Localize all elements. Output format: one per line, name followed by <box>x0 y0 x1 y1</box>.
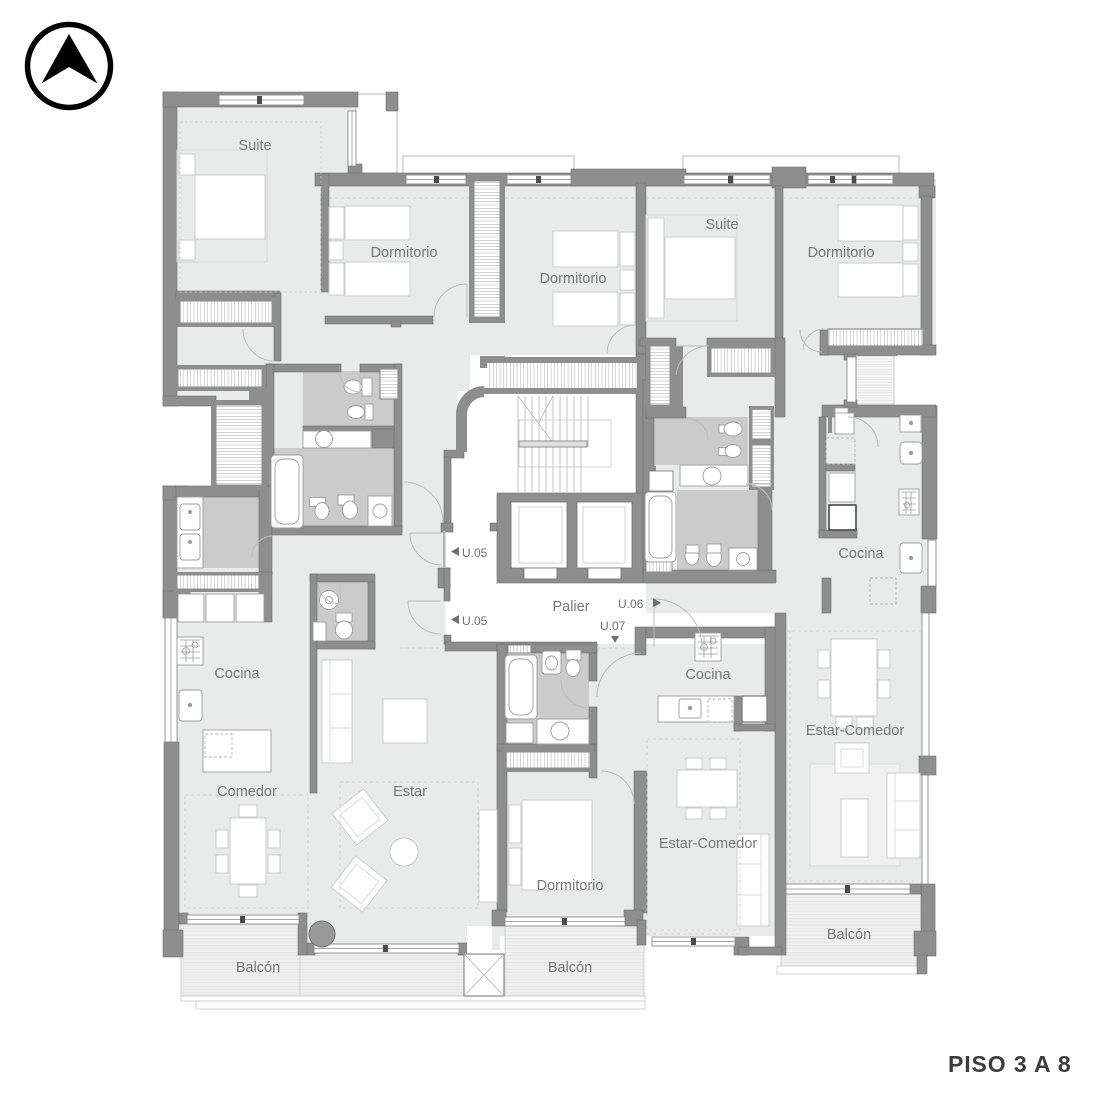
svg-text:Estar-Comedor: Estar-Comedor <box>806 723 904 739</box>
svg-text:Cocina: Cocina <box>214 666 260 682</box>
svg-text:Balcón: Balcón <box>827 927 871 943</box>
svg-text:U.05: U.05 <box>462 614 488 628</box>
svg-text:Dormitorio: Dormitorio <box>371 245 438 261</box>
svg-text:Dormitorio: Dormitorio <box>808 245 875 261</box>
svg-text:Balcón: Balcón <box>236 960 280 976</box>
svg-text:Suite: Suite <box>238 138 271 154</box>
svg-text:Estar-Comedor: Estar-Comedor <box>659 836 757 852</box>
svg-text:Balcón: Balcón <box>548 960 592 976</box>
svg-text:U.05: U.05 <box>462 546 488 560</box>
svg-text:PISO 3 A 8: PISO 3 A 8 <box>948 1051 1072 1077</box>
svg-text:Estar: Estar <box>393 784 427 800</box>
svg-text:U.07: U.07 <box>600 619 626 633</box>
svg-text:Dormitorio: Dormitorio <box>537 878 604 894</box>
svg-text:Dormitorio: Dormitorio <box>540 271 607 287</box>
svg-text:Palier: Palier <box>552 599 589 615</box>
svg-text:Comedor: Comedor <box>217 784 277 800</box>
svg-text:Suite: Suite <box>705 217 738 233</box>
svg-text:Cocina: Cocina <box>685 667 731 683</box>
svg-text:U.06: U.06 <box>618 597 644 611</box>
svg-text:Cocina: Cocina <box>838 546 884 562</box>
